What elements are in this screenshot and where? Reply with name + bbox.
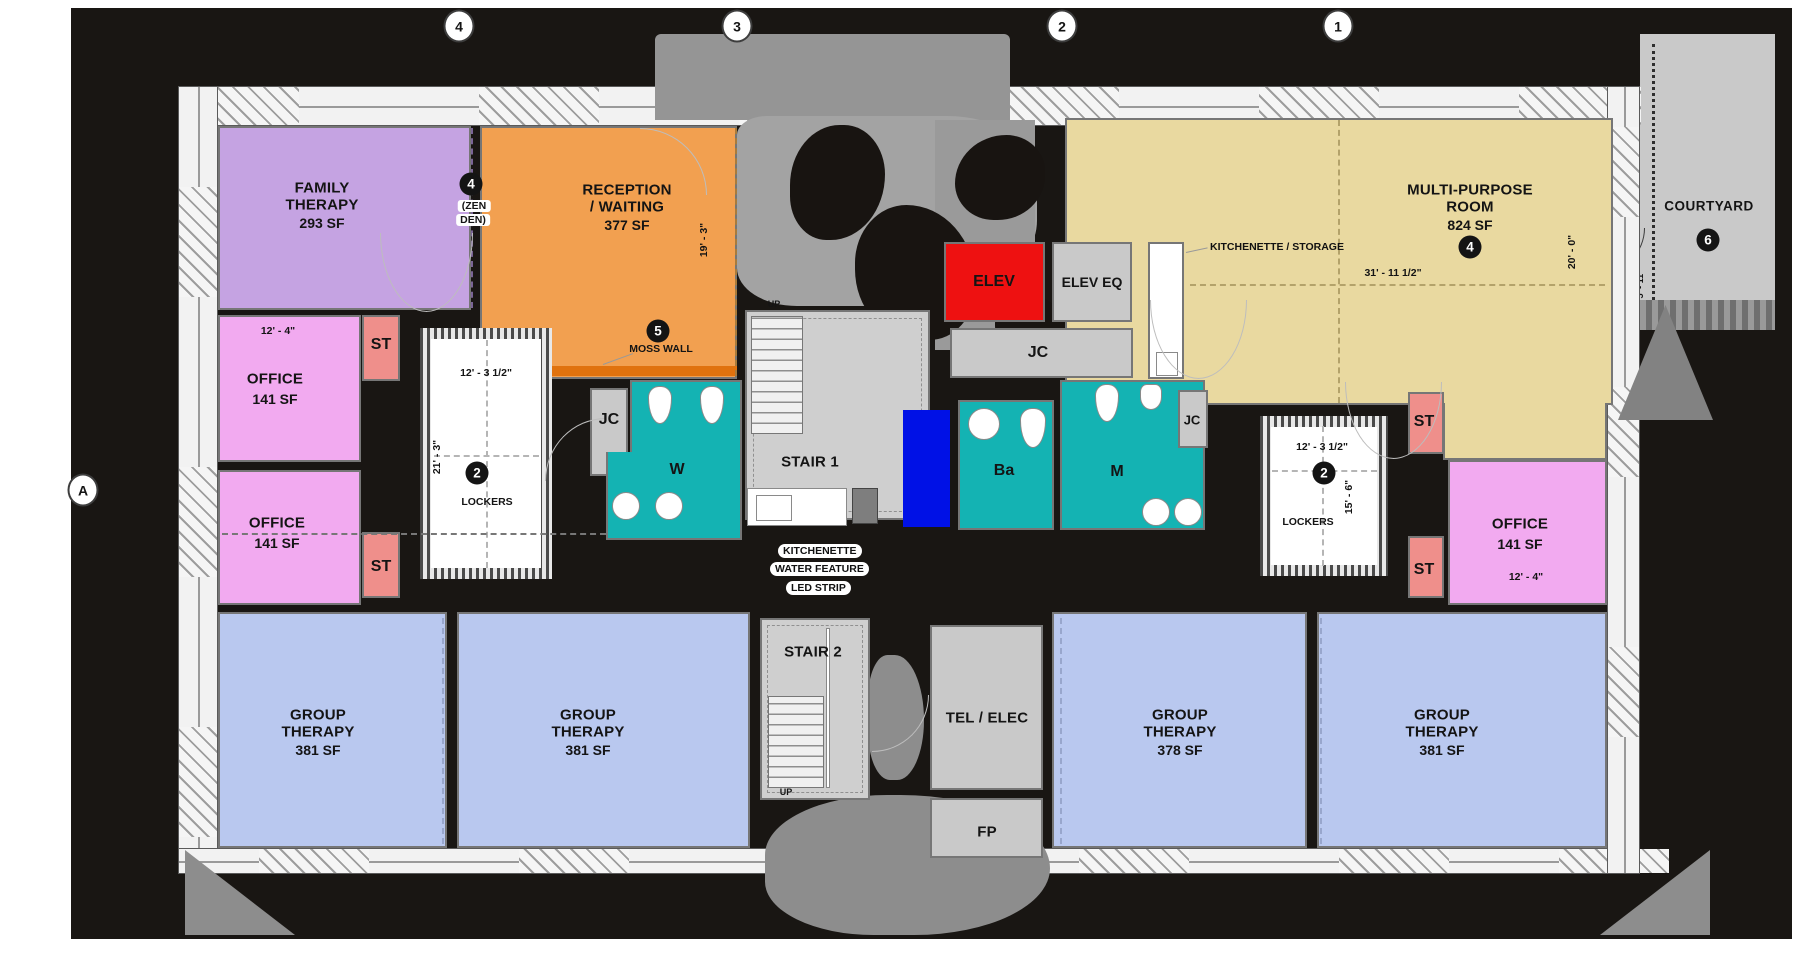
stair2-label: STAIR 2 bbox=[784, 644, 842, 661]
gt1-name-2: THERAPY bbox=[281, 724, 354, 741]
gt1-dash bbox=[442, 618, 444, 844]
family-therapy-name-2: THERAPY bbox=[285, 197, 358, 214]
lockers-east-keynote: 2 bbox=[1313, 462, 1336, 485]
room-office-e bbox=[1448, 460, 1607, 605]
zen-den-keynote: 4 bbox=[460, 173, 483, 196]
office-nw-label: OFFICE bbox=[247, 371, 303, 388]
elev-label: ELEV bbox=[973, 273, 1015, 291]
zen-den-label-2: DEN) bbox=[456, 214, 490, 226]
fp-label: FP bbox=[977, 824, 997, 841]
office-e-area: 141 SF bbox=[1497, 536, 1542, 552]
sink-w-1 bbox=[612, 492, 640, 520]
multi-purpose-name-1: MULTI-PURPOSE bbox=[1407, 182, 1533, 199]
sink-ba bbox=[968, 408, 1000, 440]
family-therapy-area: 293 SF bbox=[299, 215, 344, 231]
multi-dim-line bbox=[1190, 284, 1605, 286]
floor-plan-canvas: COURTYARD 6 5' - 11" bbox=[0, 0, 1800, 975]
restroom-w-label: W bbox=[669, 461, 684, 479]
courtyard-label: COURTYARD bbox=[1664, 199, 1754, 214]
st-se-label: ST bbox=[1414, 561, 1434, 579]
lockers-west-label: LOCKERS bbox=[461, 496, 512, 508]
gt2-name-1: GROUP bbox=[560, 707, 616, 724]
office-e-label: OFFICE bbox=[1492, 516, 1548, 533]
wall-left bbox=[178, 86, 218, 874]
zen-den-label-1: (ZEN bbox=[458, 200, 491, 212]
grid1-dash bbox=[1338, 120, 1340, 403]
office-sw-area: 141 SF bbox=[254, 535, 299, 551]
gt4-dash bbox=[1320, 618, 1322, 844]
lockers-east-dim-h: 15' - 6" bbox=[1343, 480, 1355, 514]
gt4-name-1: GROUP bbox=[1414, 707, 1470, 724]
gt3-name-1: GROUP bbox=[1152, 707, 1208, 724]
sink-m-2 bbox=[1174, 498, 1202, 526]
stair1-up: UP bbox=[768, 299, 781, 309]
room-office-nw bbox=[218, 315, 361, 462]
elev-eq-label: ELEV EQ bbox=[1062, 274, 1123, 290]
led-strip-callout: LED STRIP bbox=[786, 581, 851, 595]
grid3-dash bbox=[735, 128, 737, 376]
gt2-area: 381 SF bbox=[565, 742, 610, 758]
reception-dim: 19' - 3" bbox=[698, 223, 710, 257]
moss-wall-label: MOSS WALL bbox=[629, 343, 693, 355]
grid-bubble-2: 2 bbox=[1047, 10, 1078, 43]
urinal-m bbox=[1140, 384, 1162, 410]
gt4-name-2: THERAPY bbox=[1405, 724, 1478, 741]
kitchenette-counter bbox=[747, 488, 847, 526]
grid-bubble-4: 4 bbox=[444, 10, 475, 43]
gt3-area: 378 SF bbox=[1157, 742, 1202, 758]
jc-west-label: JC bbox=[599, 411, 619, 429]
room-tel-elec bbox=[930, 625, 1043, 790]
multi-dim-w: 31' - 11 1/2" bbox=[1364, 267, 1421, 279]
office-nw-area: 141 SF bbox=[252, 391, 297, 407]
courtyard-path-line bbox=[1652, 44, 1655, 300]
multi-purpose-name-2: ROOM bbox=[1446, 199, 1493, 216]
stair2-up: UP bbox=[780, 787, 793, 797]
gt3-name-2: THERAPY bbox=[1143, 724, 1216, 741]
room-multi-purpose-ext bbox=[1443, 403, 1607, 460]
lockers-west-dim-w: 12' - 3 1/2" bbox=[460, 367, 512, 379]
gt3-dash bbox=[1060, 618, 1062, 844]
jc-east-label: JC bbox=[1184, 413, 1201, 428]
grid-bubble-3: 3 bbox=[722, 10, 753, 43]
sink-m-1 bbox=[1142, 498, 1170, 526]
jc-center-label: JC bbox=[1028, 344, 1048, 362]
office-sw-label: OFFICE bbox=[249, 515, 305, 532]
office-e-dim: 12' - 4" bbox=[1509, 571, 1543, 583]
grid-bubble-1: 1 bbox=[1323, 10, 1354, 43]
office-nw-dim: 12' - 4" bbox=[261, 325, 295, 337]
grid-bubble-A: A bbox=[68, 474, 99, 507]
restroom-ba-label: Ba bbox=[994, 462, 1014, 480]
restroom-m-label: M bbox=[1110, 463, 1123, 481]
sink-w-2 bbox=[655, 492, 683, 520]
water-feature bbox=[903, 410, 950, 527]
st-nw-label: ST bbox=[371, 336, 391, 354]
st-ne-label: ST bbox=[1414, 413, 1434, 431]
family-therapy-name-1: FAMILY bbox=[295, 180, 350, 197]
moss-wall-keynote: 5 bbox=[647, 320, 670, 343]
multi-purpose-area: 824 SF bbox=[1447, 217, 1492, 233]
lockers-west-keynote: 2 bbox=[466, 462, 489, 485]
kitchenette-callout: KITCHENETTE bbox=[778, 544, 862, 558]
reception-name-2: / WAITING bbox=[590, 199, 664, 216]
courtyard-keynote: 6 bbox=[1697, 229, 1720, 252]
gt2-name-2: THERAPY bbox=[551, 724, 624, 741]
courtyard-area bbox=[1640, 34, 1775, 300]
reception-area: 377 SF bbox=[604, 217, 649, 233]
tel-elec-label: TEL / ELEC bbox=[946, 710, 1029, 727]
gt1-area: 381 SF bbox=[295, 742, 340, 758]
multi-dim-h: 20' - 0" bbox=[1566, 235, 1578, 269]
stair1-label: STAIR 1 bbox=[781, 454, 839, 471]
multi-purpose-keynote: 4 bbox=[1459, 236, 1482, 259]
kitchenette-storage-callout: KITCHENETTE / STORAGE bbox=[1205, 240, 1349, 254]
lockers-east-label: LOCKERS bbox=[1282, 516, 1333, 528]
reception-name-1: RECEPTION bbox=[582, 182, 671, 199]
gt1-name-1: GROUP bbox=[290, 707, 346, 724]
counter-equipment bbox=[852, 488, 878, 524]
lockers-east-dim-w: 12' - 3 1/2" bbox=[1296, 441, 1348, 453]
counter-sink bbox=[756, 495, 792, 521]
entry-canopy bbox=[655, 34, 1010, 120]
water-feature-callout: WATER FEATURE bbox=[770, 562, 869, 576]
gt4-area: 381 SF bbox=[1419, 742, 1464, 758]
lockers-west-dash-h bbox=[434, 455, 539, 457]
lockers-west-dim-h: 21' - 3" bbox=[431, 440, 443, 474]
st-sw-label: ST bbox=[371, 558, 391, 576]
